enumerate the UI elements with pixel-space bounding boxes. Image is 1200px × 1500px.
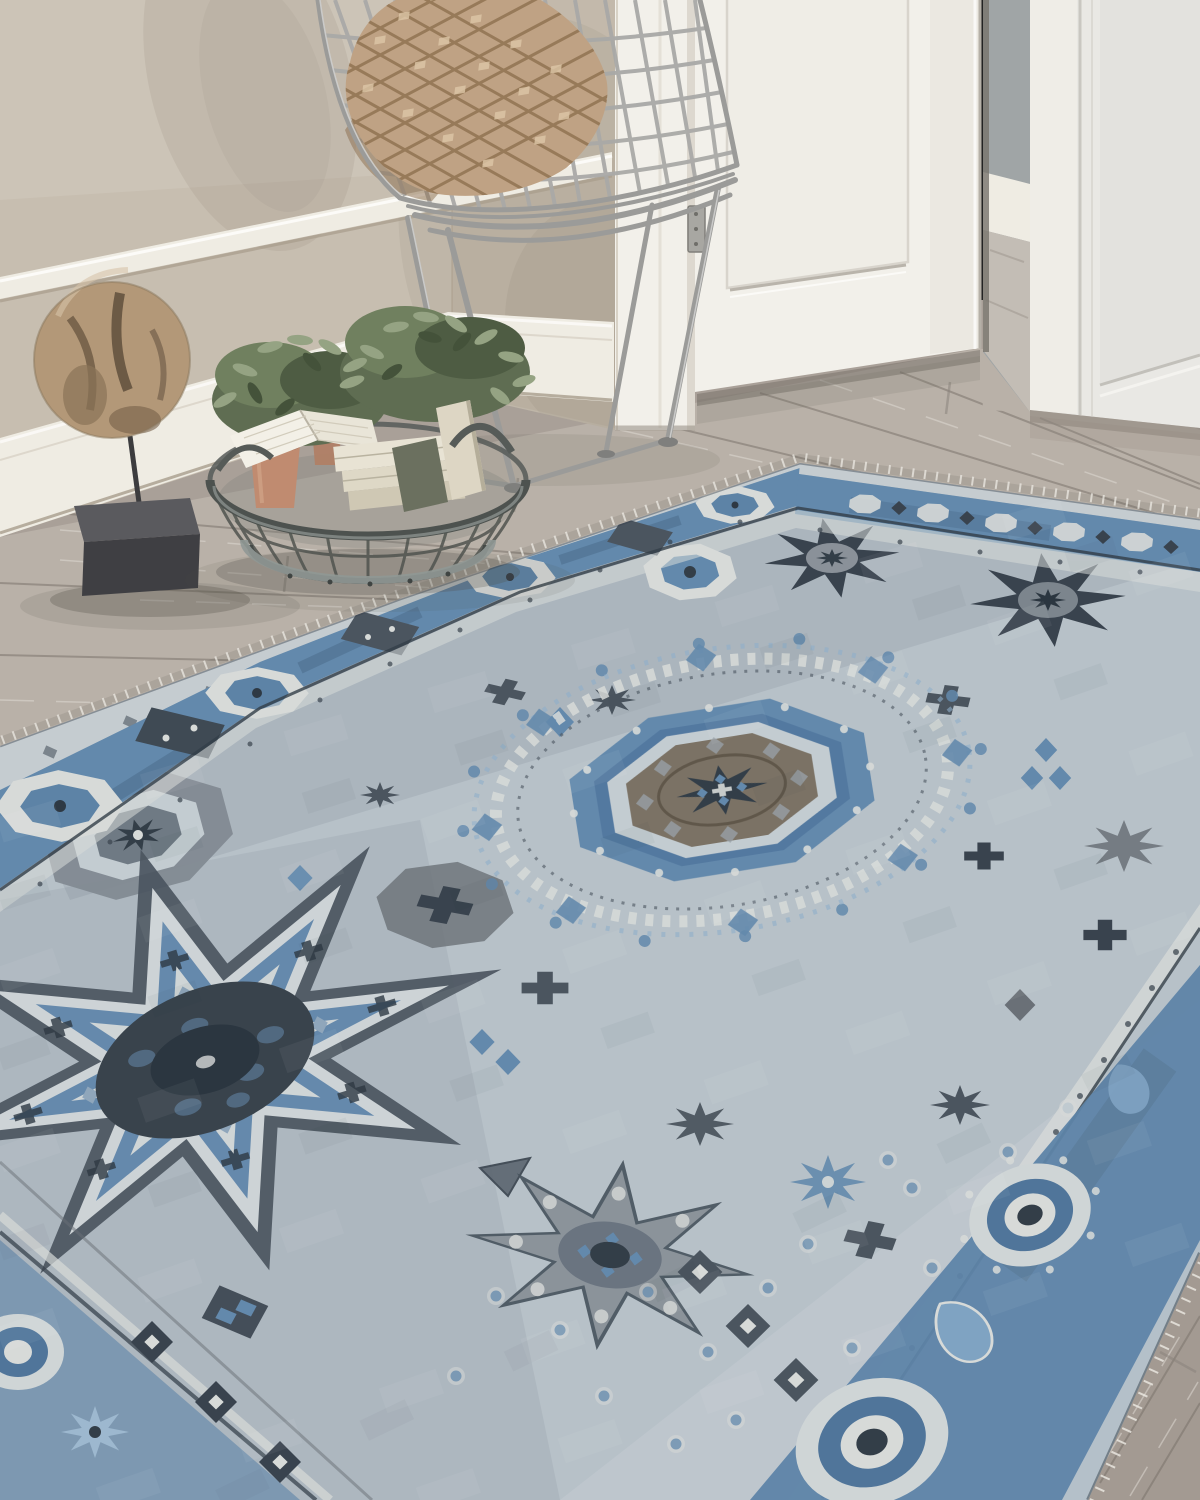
right-door-panel [1100, 0, 1200, 385]
open-door-edge-shade [930, 0, 980, 354]
open-door-panel [727, 0, 908, 297]
open-door [688, 0, 980, 424]
right-door [1030, 0, 1200, 456]
wire-basket-vignette [185, 306, 575, 612]
hallway [983, 0, 1030, 412]
photo-rug-entryway [0, 0, 1200, 1500]
hallway-baseboard [983, 172, 1030, 242]
right-door-stile [1030, 0, 1077, 414]
door-hinge-icon [688, 206, 705, 252]
door-gap-shadow [983, 0, 989, 352]
stand-base [74, 498, 200, 596]
